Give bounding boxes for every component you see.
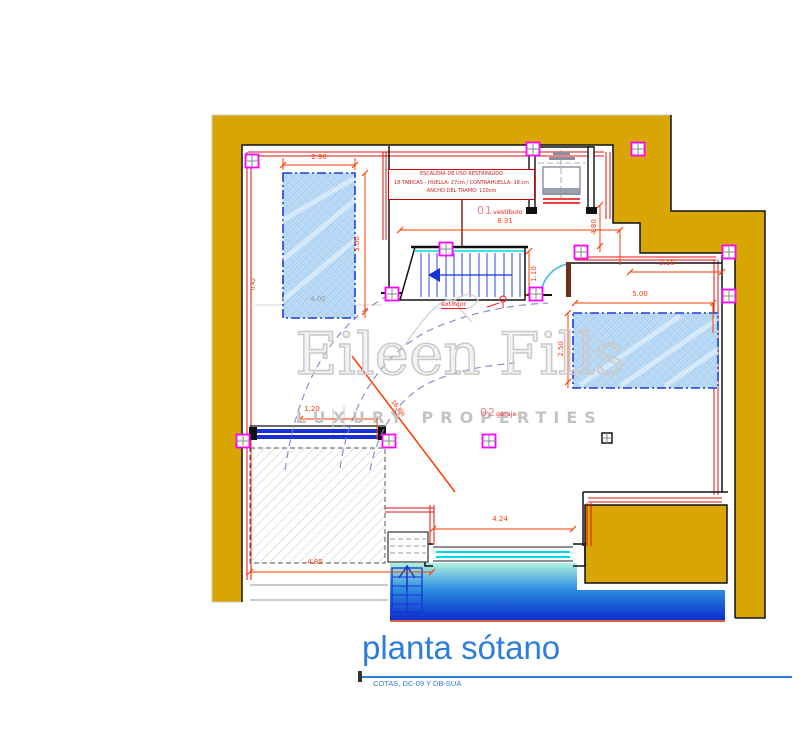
dimension-label: 4.85 <box>295 558 335 566</box>
garage-door <box>249 427 386 440</box>
page-title: planta sótano <box>362 629 560 667</box>
elevator <box>526 147 597 214</box>
dimension-label: 3.10 <box>647 259 687 267</box>
extintor-label: extintor <box>441 300 466 309</box>
room-number: 01 <box>477 204 493 217</box>
dimension-label: 0.42 <box>251 269 257 299</box>
dimension-label: 1.10 <box>530 259 538 289</box>
stair-note-line2: 18 TABICAS - HUELLA: 27cm / CONTRAHUELLA… <box>389 179 534 188</box>
room-name: vestíbulo <box>493 208 523 216</box>
solid-wall-block <box>585 505 727 583</box>
dimension-label: 4.00 <box>298 295 338 303</box>
room-label-garaje: 02garaje <box>480 401 517 420</box>
ramp-area <box>250 448 385 563</box>
page-subtitle: COTAS, DC-09 Y DB-SUA <box>373 679 461 688</box>
column-marker-dark <box>602 433 612 443</box>
room-number: 02 <box>480 406 496 419</box>
dimension-label: 8.31 <box>485 217 525 225</box>
dimension-label: 5.00 <box>353 229 361 259</box>
dimension-label: 4.24 <box>480 515 520 523</box>
glass-door <box>425 544 585 566</box>
dimension-label: 2.90 <box>299 153 339 161</box>
dimension-label: 2.50 <box>557 334 565 364</box>
stair-note-line3: ANCHO DEL TRAMO: 110cm <box>389 187 534 196</box>
dimension-label: 5.00 <box>620 290 660 298</box>
staircase <box>400 247 528 300</box>
door-leaf-icon <box>566 262 571 297</box>
door-vestibule <box>541 262 571 297</box>
watermark-name: Eileen Fills <box>288 320 632 388</box>
dimension-label: 1.20 <box>292 405 332 413</box>
stair-note-box: ESCALERA DE USO RESTRINGIDO 18 TABICAS -… <box>388 169 535 200</box>
dimension-label: 4.80 <box>590 212 598 242</box>
stair-note-line1: ESCALERA DE USO RESTRINGIDO <box>389 170 534 179</box>
watermark-tagline: LUXURY PROPERTIES <box>296 408 576 427</box>
floor-plan-canvas: ESCALERA DE USO RESTRINGIDO 18 TABICAS -… <box>0 0 812 730</box>
room-name: garaje <box>496 410 517 418</box>
room-label-vestibulo: 01vestíbulo <box>477 199 523 218</box>
